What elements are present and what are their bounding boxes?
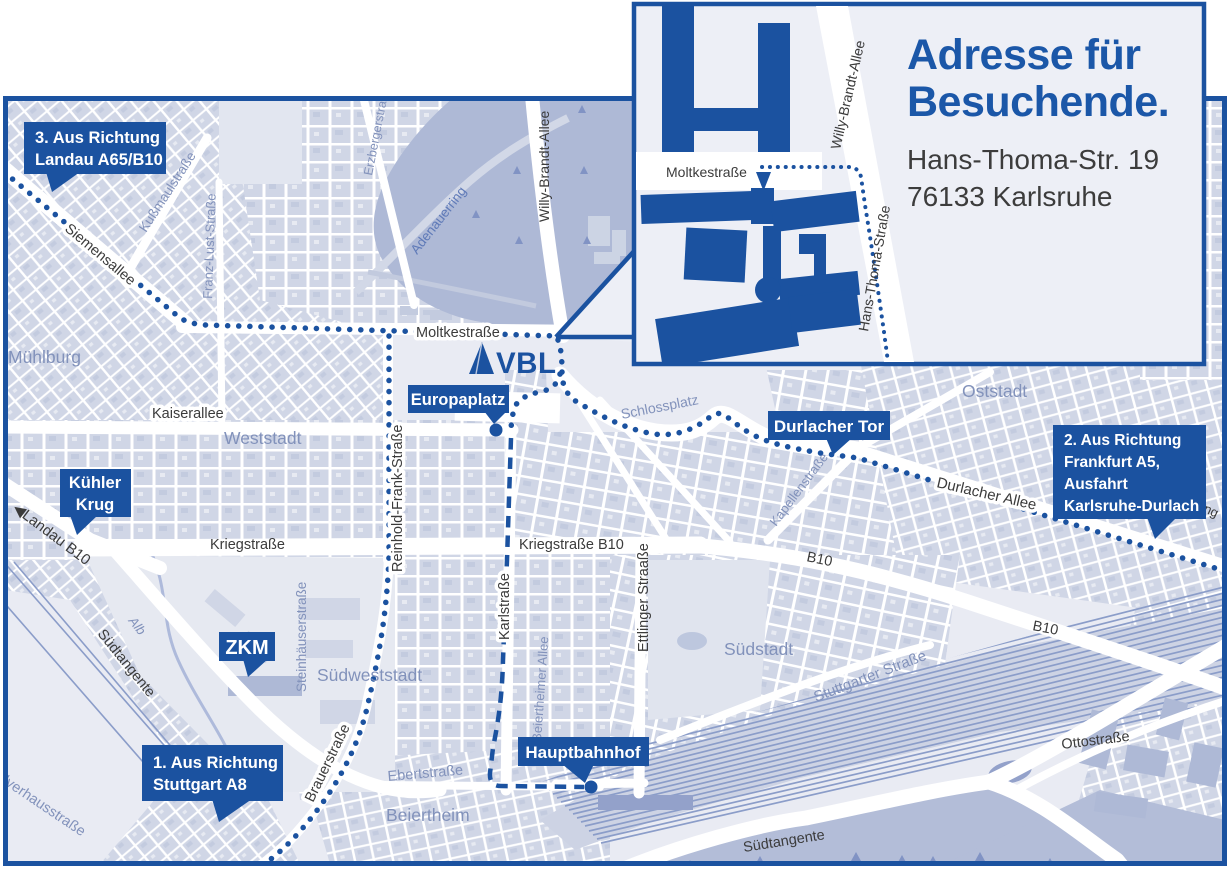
- svg-text:Europaplatz: Europaplatz: [411, 391, 505, 409]
- svg-text:Südstadt: Südstadt: [724, 639, 793, 659]
- svg-text:Stuttgart A8: Stuttgart A8: [153, 776, 247, 794]
- svg-text:Besuchende.: Besuchende.: [907, 78, 1169, 126]
- svg-text:Moltkestraße: Moltkestraße: [666, 164, 747, 180]
- svg-text:Frankfurt A5,: Frankfurt A5,: [1064, 454, 1160, 471]
- svg-text:Kriegstraße B10: Kriegstraße B10: [519, 537, 624, 553]
- svg-text:Landau A65/B10: Landau A65/B10: [35, 151, 163, 169]
- svg-text:VBL: VBL: [496, 347, 557, 380]
- svg-text:Mühlburg: Mühlburg: [8, 347, 81, 367]
- svg-text:76133 Karlsruhe: 76133 Karlsruhe: [907, 181, 1112, 212]
- svg-text:Ettlinger Straaße: Ettlinger Straaße: [636, 543, 652, 652]
- svg-text:1. Aus Richtung: 1. Aus Richtung: [153, 754, 278, 772]
- svg-text:Beiertheim: Beiertheim: [386, 805, 470, 825]
- svg-text:Weststadt: Weststadt: [224, 428, 302, 448]
- svg-text:Moltkestraße: Moltkestraße: [416, 325, 500, 341]
- svg-text:3. Aus Richtung: 3. Aus Richtung: [35, 129, 160, 147]
- svg-text:Kriegstraße: Kriegstraße: [210, 537, 285, 553]
- svg-text:2. Aus Richtung: 2. Aus Richtung: [1064, 432, 1181, 449]
- svg-text:ZKM: ZKM: [225, 637, 268, 659]
- svg-text:Adresse für: Adresse für: [907, 31, 1141, 79]
- svg-text:Karlsruhe-Durlach: Karlsruhe-Durlach: [1064, 498, 1199, 515]
- svg-text:Ausfahrt: Ausfahrt: [1064, 476, 1128, 493]
- svg-text:Kühler: Kühler: [69, 474, 122, 492]
- svg-text:Südweststadt: Südweststadt: [317, 665, 422, 685]
- svg-text:Hauptbahnhof: Hauptbahnhof: [525, 743, 641, 762]
- svg-text:Hans-Thoma-Str. 19: Hans-Thoma-Str. 19: [907, 144, 1159, 175]
- svg-text:Karlstraße: Karlstraße: [497, 573, 513, 640]
- svg-text:Oststadt: Oststadt: [962, 381, 1027, 401]
- svg-text:Durlacher Tor: Durlacher Tor: [774, 417, 885, 436]
- svg-text:Krug: Krug: [76, 496, 115, 514]
- svg-text:Steinhäuserstraße: Steinhäuserstraße: [294, 582, 309, 692]
- svg-text:Willy-Brandt-Allee: Willy-Brandt-Allee: [536, 111, 552, 222]
- svg-text:Kaiserallee: Kaiserallee: [152, 406, 224, 422]
- svg-text:Reinhold-Frank-Straße: Reinhold-Frank-Straße: [390, 425, 406, 572]
